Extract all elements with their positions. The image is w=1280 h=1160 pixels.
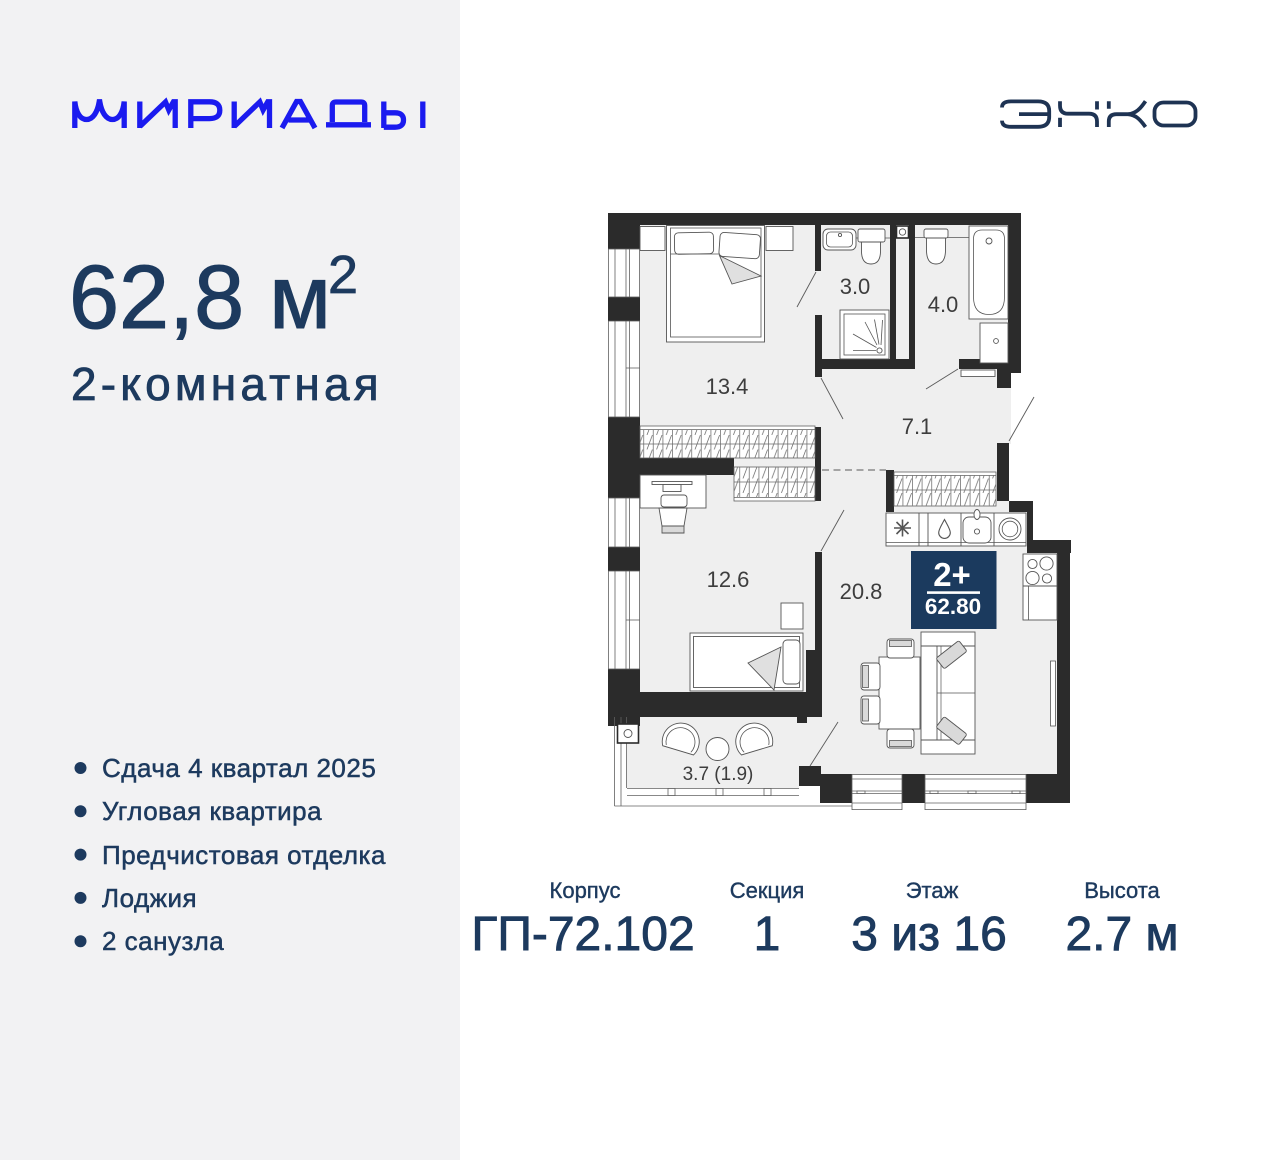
svg-text:2+: 2+: [933, 556, 971, 593]
svg-text:20.8: 20.8: [840, 579, 883, 604]
svg-text:7.1: 7.1: [902, 414, 933, 439]
svg-text:13.4: 13.4: [706, 374, 749, 399]
svg-text:12.6: 12.6: [707, 567, 750, 592]
svg-text:62.80: 62.80: [925, 594, 981, 619]
svg-text:4.0: 4.0: [928, 292, 959, 317]
svg-text:3.0: 3.0: [840, 274, 871, 299]
svg-text:3.7 (1.9): 3.7 (1.9): [683, 764, 754, 785]
